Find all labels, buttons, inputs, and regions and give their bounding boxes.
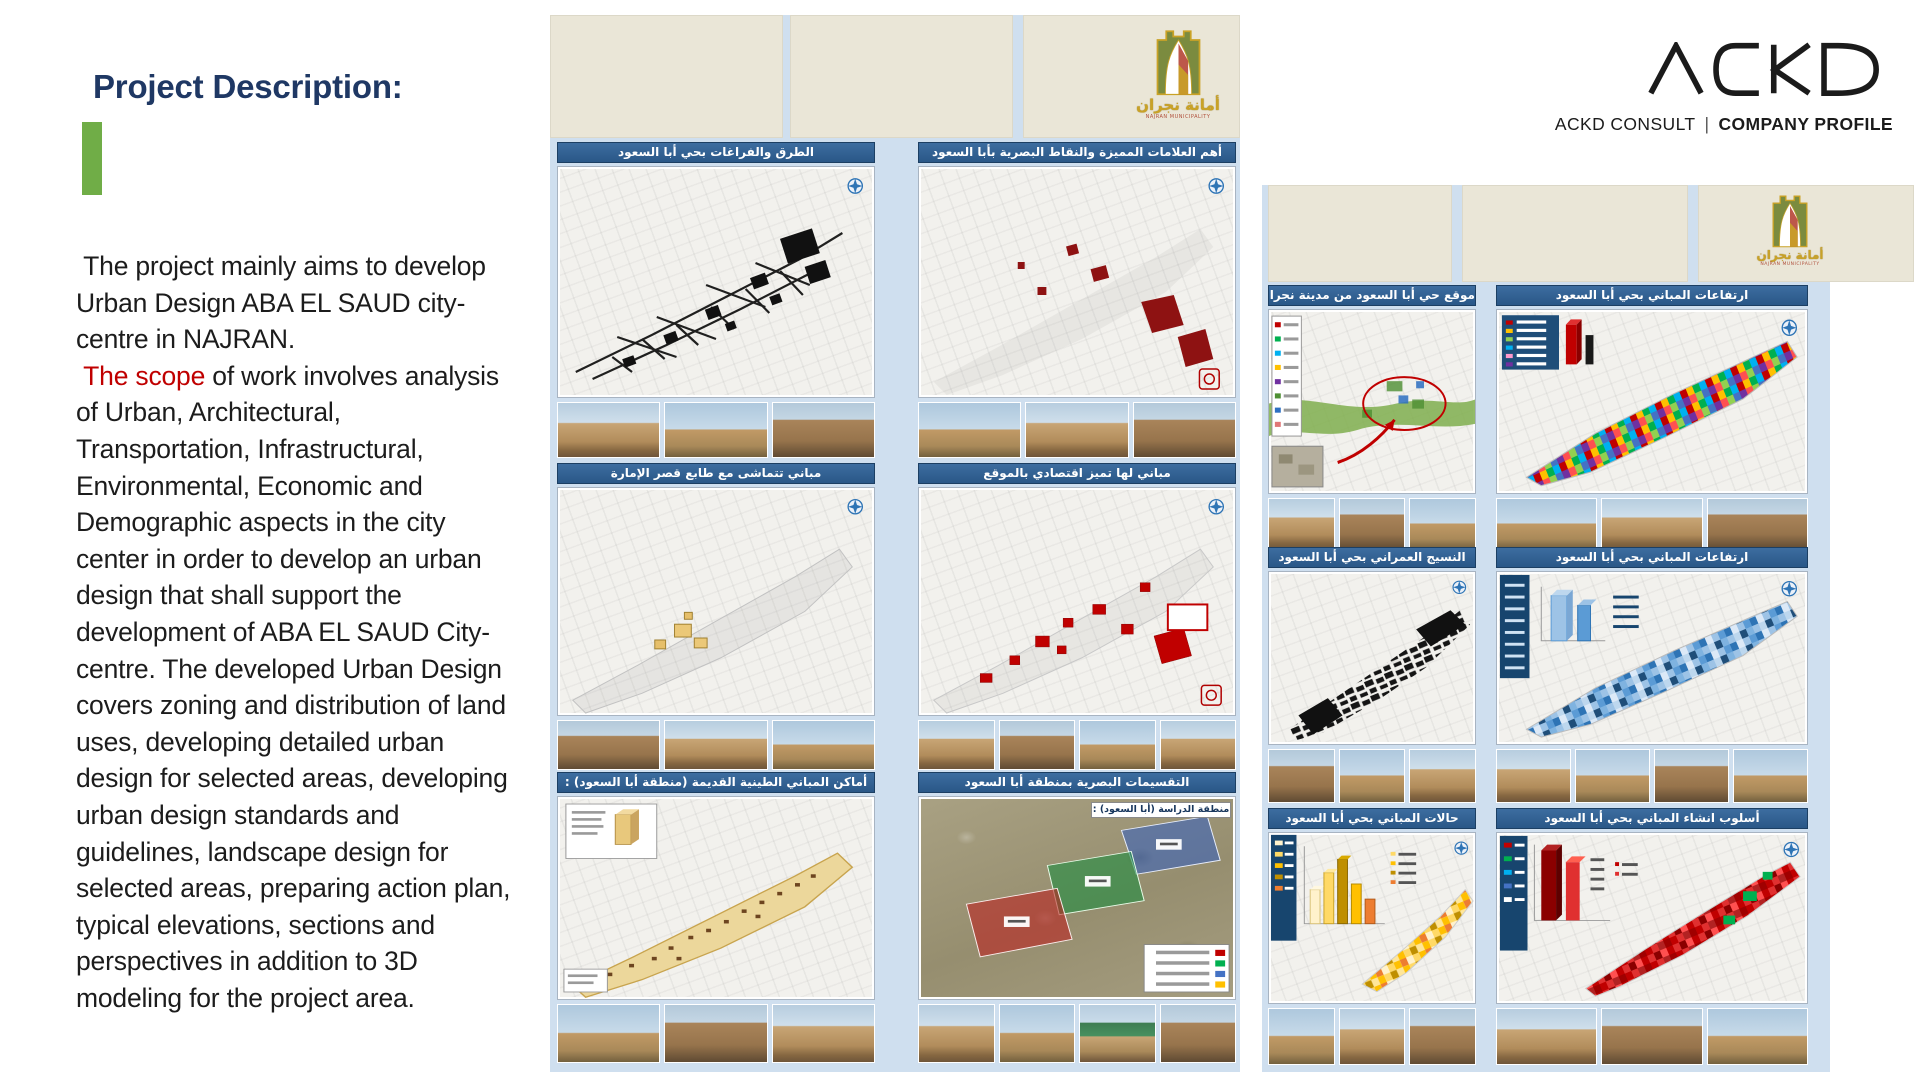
panel-district-location: موقع حي أبا السعود من مدينة نجران xyxy=(1268,285,1476,550)
photo-thumbnail xyxy=(1496,749,1571,803)
panel-title-bar: أماكن المباني الطينية القديمة (منطقة أبا… xyxy=(557,772,875,793)
photo-thumbnail xyxy=(1707,1008,1808,1065)
photo-strip xyxy=(1496,1008,1808,1065)
photo-thumbnail xyxy=(1160,1004,1237,1063)
compass-icon xyxy=(1784,843,1798,857)
inset-3d-chart xyxy=(566,804,657,858)
map-key xyxy=(1272,316,1301,436)
photo-thumbnail xyxy=(999,720,1076,770)
photo-thumbnail xyxy=(1339,498,1406,550)
compass-icon xyxy=(1209,500,1223,514)
urban-fabric-map xyxy=(1268,571,1476,745)
photo-strip xyxy=(1268,749,1476,803)
brand-consult: ACKD CONSULT xyxy=(1555,114,1696,134)
panel-title-bar: مباني لها تميز اقتصادي بالموقع xyxy=(918,463,1236,484)
poster-right-band xyxy=(1462,185,1688,282)
photo-thumbnail xyxy=(1160,720,1237,770)
photo-strip xyxy=(918,402,1236,458)
photo-strip xyxy=(1496,498,1808,550)
municipality-name-arabic: أمانة نجران xyxy=(1757,248,1824,262)
photo-thumbnail xyxy=(1707,498,1808,550)
economic-map xyxy=(918,487,1236,716)
panel-roads-and-spaces: الطرق والفراغات بحي أبا السعود xyxy=(557,142,875,458)
project-description-text: The project mainly aims to develop Urban… xyxy=(76,248,558,1016)
photo-thumbnail xyxy=(1079,720,1156,770)
poster-center-band xyxy=(790,15,1013,138)
panel-title-bar: أهم العلامات المميزة والنقاط البصرية بأب… xyxy=(918,142,1236,163)
photo-strip xyxy=(918,720,1236,770)
photo-strip xyxy=(1268,498,1476,550)
scope-highlight: The scope xyxy=(83,361,205,391)
conditions-3d-bar-chart xyxy=(1304,846,1416,923)
panel-title-bar: ارتفاعات المباني بحي أبا السعود xyxy=(1496,547,1808,568)
photo-thumbnail xyxy=(1654,749,1729,803)
poster-center-band xyxy=(550,15,783,138)
palace-character-map xyxy=(557,487,875,716)
heights-legend xyxy=(1502,315,1559,369)
photo-thumbnail xyxy=(1409,749,1476,803)
panel-economic-distinction: مباني لها تميز اقتصادي بالموقع xyxy=(918,463,1236,770)
ackd-logo-icon xyxy=(1637,42,1890,96)
brand-subtitle: ACKD CONSULT|COMPANY PROFILE xyxy=(1430,114,1893,135)
municipality-name-english: NAJRAN MUNICIPALITY xyxy=(1760,262,1819,267)
panel-title-bar: الطرق والفراغات بحي أبا السعود xyxy=(557,142,875,163)
panel-urban-fabric: النسيج العمراني بحي أبا السعود xyxy=(1268,547,1476,803)
photo-thumbnail xyxy=(918,402,1021,458)
panel-title-bar: التقسيمات البصرية بمنطقة أبا السعود xyxy=(918,772,1236,793)
panel-landmarks: أهم العلامات المميزة والنقاط البصرية بأب… xyxy=(918,142,1236,458)
panel-title-bar: ارتفاعات المباني بحي أبا السعود xyxy=(1496,285,1808,306)
compass-icon xyxy=(1782,582,1796,596)
brand-separator: | xyxy=(1705,114,1710,134)
photo-thumbnail xyxy=(772,1004,875,1063)
photo-strip xyxy=(918,1004,1236,1063)
panel-building-heights-blue: ارتفاعات المباني بحي أبا السعود xyxy=(1496,547,1808,803)
construction-3d-bars xyxy=(1534,845,1637,921)
satellite-inset xyxy=(1272,446,1323,487)
panel-visual-divisions: التقسيمات البصرية بمنطقة أبا السعود منطق… xyxy=(918,772,1236,1063)
zone-legend xyxy=(1144,945,1229,992)
para-after-scope: of work involves analysis of Urban, Arch… xyxy=(76,361,510,1013)
poster-right-band xyxy=(1268,185,1452,282)
photo-thumbnail xyxy=(1268,749,1335,803)
building-heights-map xyxy=(1496,309,1808,494)
photo-thumbnail xyxy=(1575,749,1650,803)
construction-legend xyxy=(1500,836,1528,951)
photo-thumbnail xyxy=(1339,749,1406,803)
photo-thumbnail xyxy=(772,720,875,770)
compass-icon xyxy=(1209,179,1223,193)
photo-thumbnail xyxy=(664,402,767,458)
panel-building-heights: ارتفاعات المباني بحي أبا السعود xyxy=(1496,285,1808,550)
panel-title-bar: موقع حي أبا السعود من مدينة نجران xyxy=(1268,285,1476,306)
building-heights-blue-map xyxy=(1496,571,1808,745)
photo-thumbnail xyxy=(1339,1008,1406,1065)
photo-strip xyxy=(557,402,875,458)
photo-thumbnail xyxy=(1268,1008,1335,1065)
municipality-arch-icon xyxy=(1768,192,1812,248)
landmarks-map xyxy=(918,166,1236,398)
compass-icon xyxy=(1453,581,1466,593)
panel-title-bar: حالات المباني بحي أبا السعود xyxy=(1268,808,1476,829)
photo-thumbnail xyxy=(557,720,660,770)
legend-3d-bars xyxy=(1566,319,1594,364)
municipality-name-arabic: أمانة نجران xyxy=(1136,96,1220,114)
photo-thumbnail xyxy=(557,1004,660,1063)
blue-3d-bar-chart xyxy=(1541,587,1638,641)
photo-thumbnail xyxy=(1268,498,1335,550)
photo-thumbnail xyxy=(918,1004,995,1063)
photo-thumbnail xyxy=(1409,1008,1476,1065)
accent-bar xyxy=(82,122,102,195)
panel-construction-method: أسلوب انشاء المباني بحي أبا السعود xyxy=(1496,808,1808,1065)
photo-thumbnail xyxy=(1601,498,1702,550)
roads-map xyxy=(557,166,875,398)
heights-blue-legend xyxy=(1500,575,1530,678)
compass-icon xyxy=(848,500,862,514)
building-conditions-map xyxy=(1268,832,1476,1004)
panel-title-bar: مباني تتماشى مع طابع قصر الإمارة xyxy=(557,463,875,484)
compass-icon xyxy=(848,179,862,193)
photo-strip xyxy=(557,720,875,770)
panel-title-bar: النسيج العمراني بحي أبا السعود xyxy=(1268,547,1476,568)
photo-strip xyxy=(1268,1008,1476,1065)
brand-profile: COMPANY PROFILE xyxy=(1718,114,1893,134)
photo-thumbnail xyxy=(1133,402,1236,458)
construction-method-map xyxy=(1496,832,1808,1004)
photo-thumbnail xyxy=(557,402,660,458)
najran-city-map xyxy=(1268,309,1476,494)
satellite-zones-map: منطقة الدراسة (أبا السعود) : xyxy=(918,796,1236,1000)
photo-thumbnail xyxy=(1025,402,1128,458)
photo-thumbnail xyxy=(664,720,767,770)
photo-thumbnail xyxy=(1409,498,1476,550)
panel-palace-character: مباني تتماشى مع طابع قصر الإمارة xyxy=(557,463,875,770)
mud-buildings-map xyxy=(557,796,875,1000)
photo-strip xyxy=(557,1004,875,1063)
photo-thumbnail xyxy=(772,402,875,458)
photo-strip xyxy=(1496,749,1808,803)
photo-thumbnail xyxy=(1496,498,1597,550)
photo-thumbnail xyxy=(999,1004,1076,1063)
panel-title-bar: أسلوب انشاء المباني بحي أبا السعود xyxy=(1496,808,1808,829)
najran-municipality-logo: أمانة نجران NAJRAN MUNICIPALITY xyxy=(1138,26,1218,120)
municipality-name-english: NAJRAN MUNICIPALITY xyxy=(1146,114,1211,120)
photo-thumbnail xyxy=(1496,1008,1597,1065)
slide: Project Description: The project mainly … xyxy=(0,0,1920,1080)
panel-old-mud-buildings: أماكن المباني الطينية القديمة (منطقة أبا… xyxy=(557,772,875,1063)
photo-thumbnail xyxy=(1601,1008,1702,1065)
municipality-arch-icon xyxy=(1151,26,1206,96)
najran-municipality-logo: أمانة نجران NAJRAN MUNICIPALITY xyxy=(1758,192,1822,267)
study-area-label: منطقة الدراسة (أبا السعود) : xyxy=(1091,802,1231,818)
photo-thumbnail xyxy=(664,1004,767,1063)
compass-icon xyxy=(1782,320,1796,335)
compass-icon xyxy=(1455,842,1468,854)
page-title: Project Description: xyxy=(93,68,403,106)
photo-thumbnail xyxy=(1733,749,1808,803)
conditions-legend xyxy=(1271,835,1297,941)
panel-building-conditions: حالات المباني بحي أبا السعود xyxy=(1268,808,1476,1065)
photo-thumbnail xyxy=(1079,1004,1156,1063)
photo-thumbnail xyxy=(918,720,995,770)
